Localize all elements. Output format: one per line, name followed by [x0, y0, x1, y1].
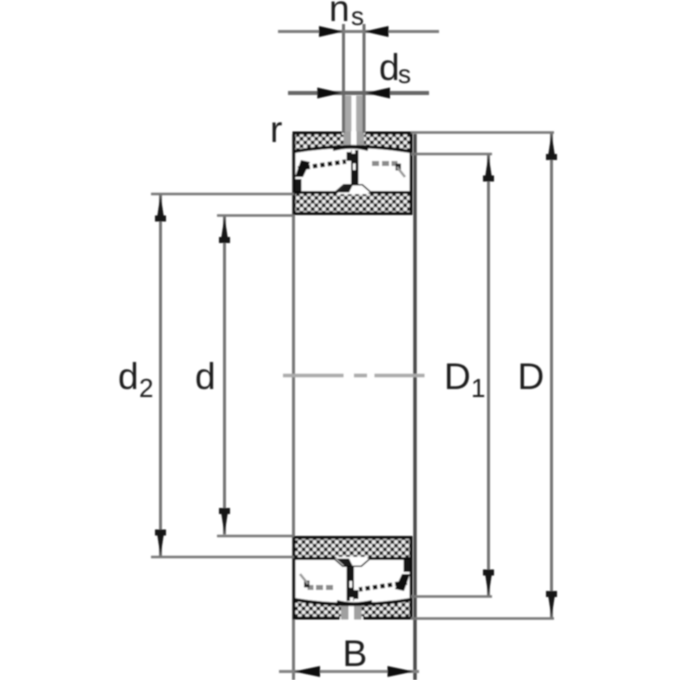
svg-text:D: D [444, 356, 471, 397]
svg-text:d: d [118, 356, 139, 397]
svg-text:2: 2 [139, 373, 153, 403]
svg-text:d: d [379, 47, 400, 88]
svg-text:B: B [343, 633, 368, 674]
svg-text:s: s [351, 1, 364, 31]
svg-text:s: s [398, 59, 411, 89]
svg-text:n: n [329, 0, 350, 29]
svg-text:d: d [195, 356, 216, 397]
svg-text:1: 1 [471, 373, 485, 403]
svg-text:D: D [518, 356, 545, 397]
svg-text:r: r [270, 109, 282, 150]
